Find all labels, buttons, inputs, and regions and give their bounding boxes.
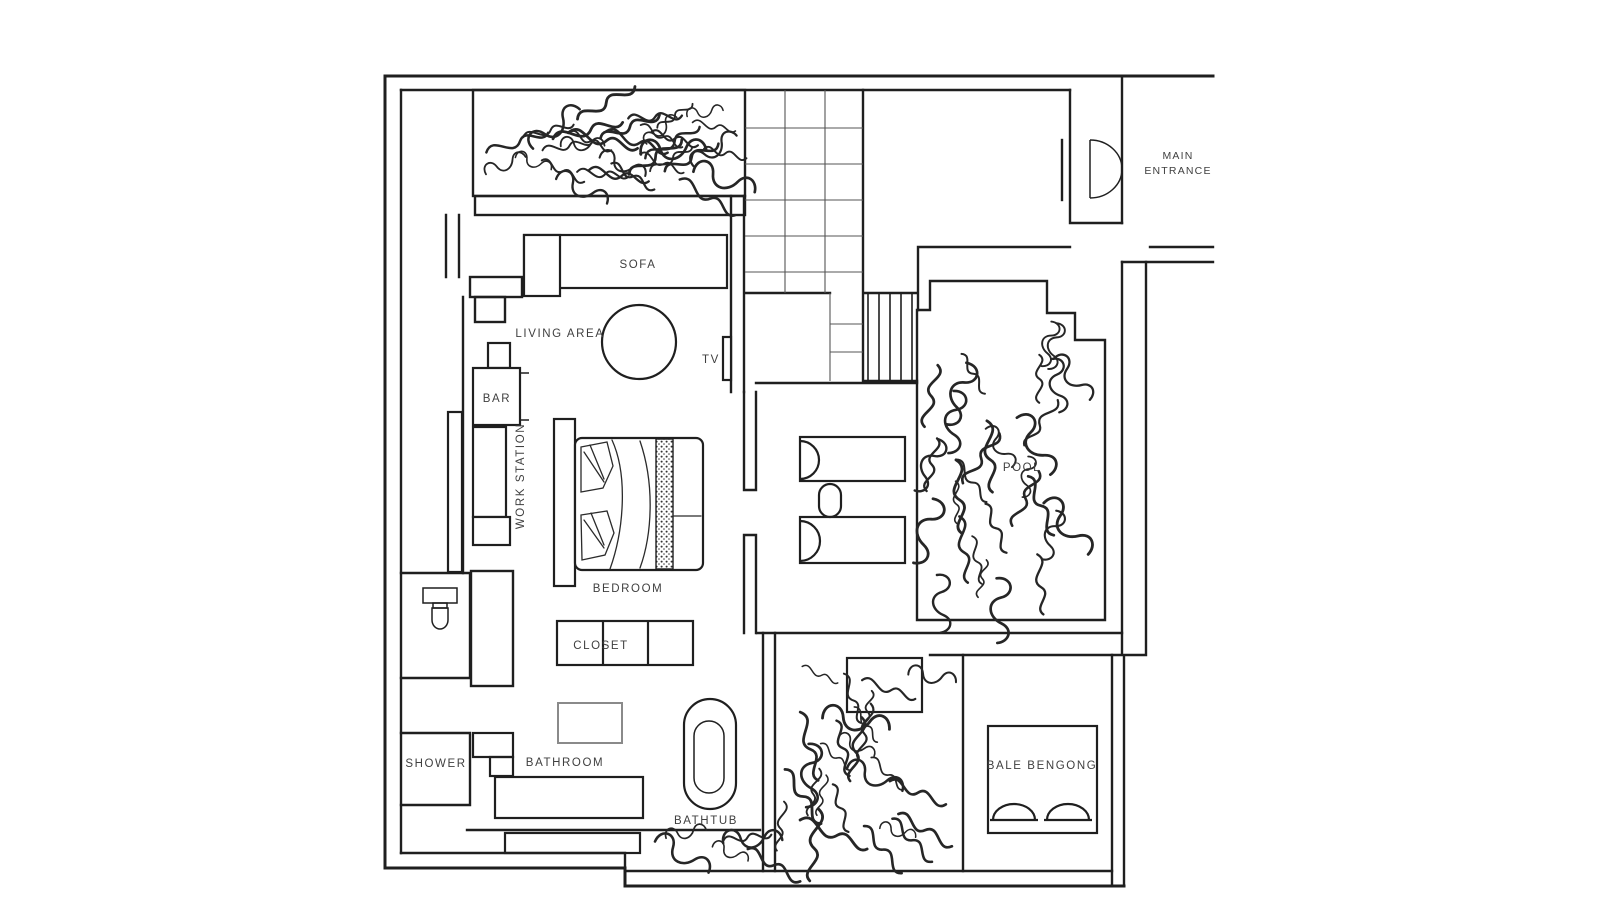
tv-unit — [723, 337, 731, 380]
label-main-entrance-line2: ENTRANCE — [1144, 165, 1211, 177]
floor-plan-canvas: SOFA LIVING AREA TV BAR WORK STATION BED… — [0, 0, 1600, 900]
label-shower: SHOWER — [405, 758, 466, 770]
label-bedroom: BEDROOM — [593, 583, 664, 595]
label-sofa: SOFA — [619, 259, 656, 271]
label-living-area: LIVING AREA — [515, 328, 604, 340]
label-bale-bengong: BALE BENGONG — [987, 760, 1098, 772]
bed — [554, 419, 703, 586]
floor-plan-svg: SOFA LIVING AREA TV BAR WORK STATION BED… — [0, 0, 1600, 900]
label-bar: BAR — [483, 393, 511, 405]
label-bathtub: BATHTUB — [674, 815, 738, 827]
label-work-station: WORK STATION — [515, 423, 527, 529]
label-pool: POOL — [1003, 462, 1041, 474]
label-bathroom: BATHROOM — [526, 757, 604, 769]
label-tv: TV — [702, 354, 720, 366]
label-closet: CLOSET — [573, 640, 629, 652]
label-main-entrance-line1: MAIN — [1162, 150, 1193, 162]
